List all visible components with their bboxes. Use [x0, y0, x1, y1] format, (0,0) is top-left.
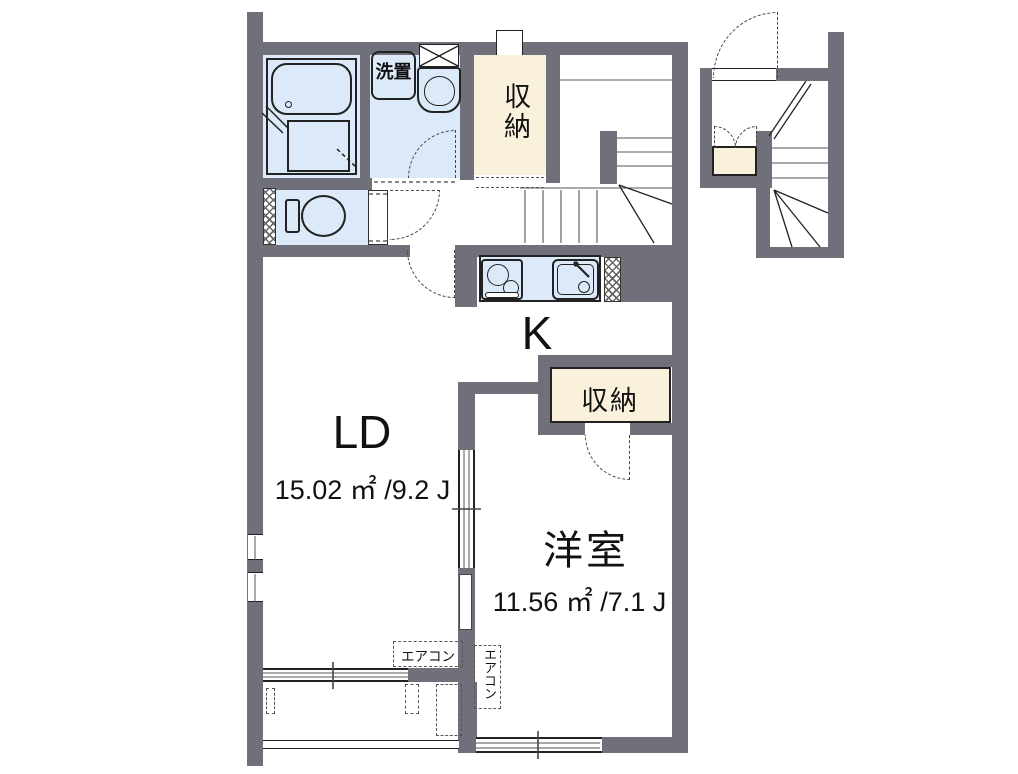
wall-left [247, 12, 263, 766]
wall-hall-bottom-left [247, 245, 410, 257]
toilet-tank [285, 199, 300, 233]
label-ld: LD [302, 405, 422, 459]
label-kitchen: K [505, 306, 569, 360]
toilet-bowl [301, 195, 346, 237]
annex-shoe-box [712, 146, 757, 176]
label-western-area: 11.56 ㎡ /7.1 J [462, 580, 697, 619]
wall-k-west-divider [458, 382, 550, 394]
wall-ld-bottom [408, 668, 458, 682]
label-storage-upper: 収納 [496, 82, 535, 142]
stair-rail-annex [769, 81, 828, 247]
pipe-space-kitchen [604, 257, 621, 302]
bathtub-drain [285, 101, 292, 108]
balcony-sliding-door [263, 668, 408, 682]
label-ld-area: 15.02 ㎡ /9.2 J [250, 468, 475, 507]
storage-upper-door-dash-2 [476, 187, 544, 188]
wall-storage-stairs [546, 42, 560, 183]
wall-storage2-bottom-right [630, 423, 672, 435]
wall-kitchen-left-stub [455, 245, 477, 307]
label-western-room: 洋室 [516, 518, 656, 576]
bathtub [271, 63, 352, 115]
window-ld-left-2 [248, 572, 263, 602]
pipe-space-toilet [263, 188, 276, 245]
toilet-door [368, 190, 388, 245]
floorplan: 洗置 エアコン エアコン [0, 0, 1018, 774]
window-ld-left-1 [248, 534, 263, 560]
stair-treads-annex [772, 148, 828, 178]
wall-annex-left [700, 68, 712, 188]
door-arc-toilet [390, 190, 440, 240]
ac-outdoor-pad-1 [405, 684, 419, 714]
wall-bath-washroom [360, 53, 370, 180]
aircon-ld-label: エアコン [393, 645, 463, 665]
shower-area [287, 120, 350, 172]
window-west-bottom [476, 737, 602, 753]
sink-drain [578, 281, 590, 293]
vanity-bowl [424, 76, 455, 106]
door-arc-shoe-left [714, 126, 736, 148]
door-arc-hall-ld [407, 250, 455, 298]
wall-stair-stub [600, 131, 617, 184]
balcony-rail [263, 740, 459, 749]
door-arc-storage-west [585, 435, 630, 480]
label-storage-west: 収納 [560, 379, 660, 418]
wall-kitchen-right-block [620, 255, 672, 302]
wall-annex-bottom [756, 247, 844, 258]
washer-label: 洗置 [371, 58, 416, 84]
stove-grill [485, 292, 519, 298]
wall-right [672, 42, 688, 753]
wall-washroom-storage [460, 42, 474, 180]
wall-annex-stub [756, 131, 772, 188]
vent-notch [496, 30, 523, 55]
storage-upper-door-dash-1 [476, 177, 544, 178]
door-arc-entrance [713, 12, 778, 78]
door-arc-shoe-right [735, 126, 757, 148]
wall-west-bottom [600, 737, 688, 753]
balcony-drain [266, 688, 275, 714]
shelf-crossed-box [419, 44, 459, 67]
wall-annex-right [828, 32, 844, 258]
wall-storage2-bottom-left [538, 423, 585, 435]
aircon-west-label: エアコン [480, 648, 499, 700]
stair-winders-main [619, 185, 672, 243]
ac-outdoor-pad-2 [436, 684, 462, 736]
wall-annex-top-right [776, 68, 828, 81]
